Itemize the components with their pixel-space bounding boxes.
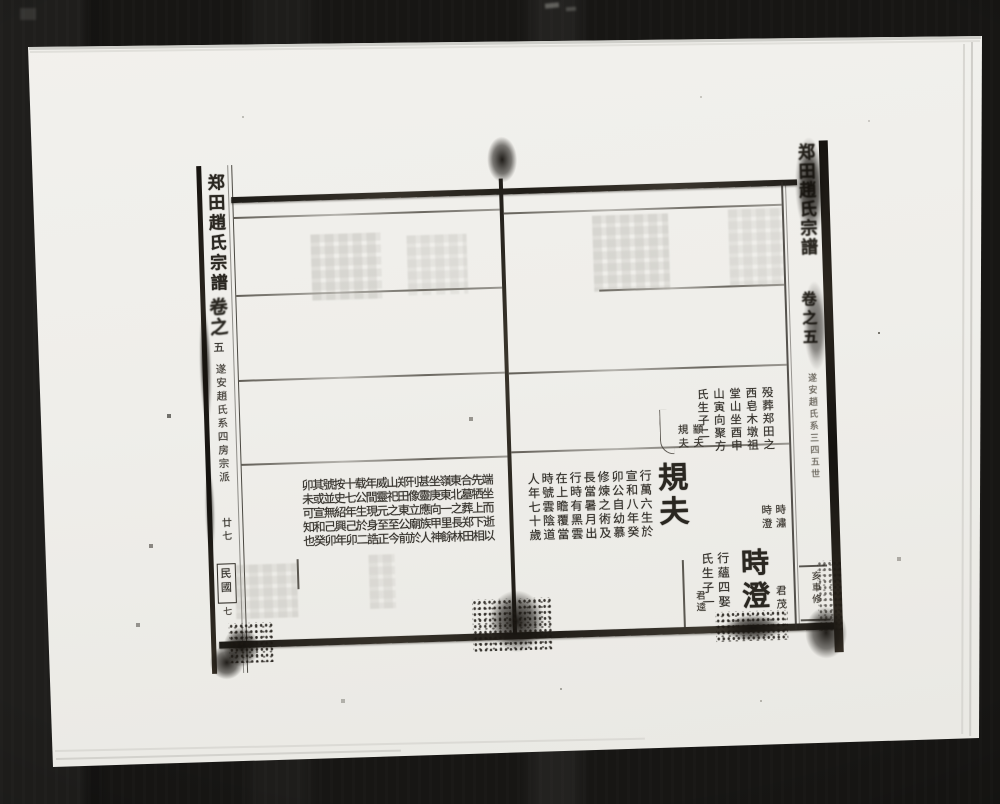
upper-sons-names: 顓夫 規夫 xyxy=(673,423,706,451)
era-label: 民國 xyxy=(217,567,234,595)
bleedthrough-text xyxy=(592,213,670,291)
entry-guifu-sons: 時潚 時澄 xyxy=(759,504,788,532)
left-page-text: 端坐而逝以 先牺上下相 合墓葬郑田 東北之長林 嶺東一里餘 坐庚向甲神 甚靈應族… xyxy=(302,473,494,549)
ink-smear xyxy=(802,280,829,371)
ink-speckle xyxy=(472,597,554,651)
frame-top-border xyxy=(231,179,797,202)
ink-stroke xyxy=(297,559,299,589)
sheet-edge xyxy=(961,44,965,734)
bleedthrough-text xyxy=(235,563,299,619)
rule-line xyxy=(239,372,505,382)
background-scratch xyxy=(566,7,576,12)
sheet-edge xyxy=(969,42,972,736)
margin-name: 君茂 xyxy=(774,585,790,612)
entry-guifu-text: 行萬六生於 宣和八年癸 卯公自幼慕 修煉之術及 長當暑月出 行時有黑雲 在上瞻覆… xyxy=(526,469,654,543)
dust-specks xyxy=(0,0,2,2)
spine-title: 郑田趙氏宗譜 xyxy=(200,173,230,294)
ink-stroke xyxy=(682,560,686,628)
ink-speckle xyxy=(229,622,276,663)
era-number: 七 xyxy=(220,606,233,615)
ink-speckle xyxy=(817,560,845,631)
ink-speckle xyxy=(715,610,788,642)
rule-line xyxy=(234,209,500,219)
entry-shicheng-son: 君逵 xyxy=(692,590,707,613)
right-page-upper-text: 殁葬郑田之 西皂木墩祖 堂山坐酉申 山寅向聚方 氏生子二 xyxy=(693,386,777,454)
photo-background: 郑田趙氏宗譜 卷之 五 遂安趙氏系四房宗派 廿七 民國 七 端坐而 xyxy=(0,0,1000,804)
ink-smear xyxy=(794,136,827,237)
bleedthrough-text xyxy=(406,234,468,296)
entry-name-guifu: 規夫 xyxy=(652,461,688,530)
bleedthrough-text xyxy=(310,232,382,300)
spine-series: 遂安趙氏系四房宗派 xyxy=(213,363,232,485)
spine-series: 遂安趙氏系三四五世 xyxy=(805,373,821,481)
background-smudge xyxy=(20,8,36,20)
fold-line xyxy=(499,179,517,635)
spine-volume-number: 五 xyxy=(210,341,226,352)
spine-note: 廿七 xyxy=(217,517,233,543)
rule-line xyxy=(509,364,787,374)
rule-line xyxy=(242,456,508,466)
annotation-curve xyxy=(659,409,674,454)
ink-smear xyxy=(204,466,217,556)
bleedthrough-text xyxy=(368,554,396,609)
entry-name-shicheng: 時澄 xyxy=(736,547,770,614)
bleedthrough-text xyxy=(728,208,784,288)
right-spine: 郑田趙氏宗譜 卷之五 遂安趙氏系三四五世 亥車修 xyxy=(780,140,848,653)
genealogy-page: 郑田趙氏宗譜 卷之 五 遂安趙氏系四房宗派 廿七 民國 七 端坐而 xyxy=(196,140,852,680)
